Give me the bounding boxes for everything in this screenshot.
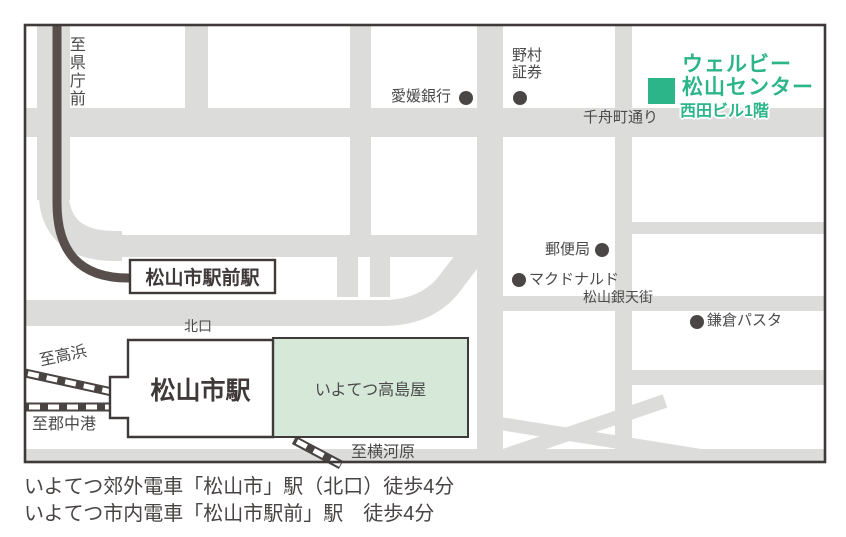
matsuyama-station-label: 松山市駅 — [128, 340, 273, 437]
post-office-dot — [595, 243, 609, 257]
kamakura-pasta-label: 鎌倉パスタ — [707, 313, 782, 330]
road-vertical-2 — [185, 26, 208, 111]
road-east-horizontal — [615, 222, 824, 234]
to-kencho-mae-label: 至県庁前 — [66, 36, 84, 108]
destination-building: 西田ビル1階 — [680, 103, 769, 121]
post-office-label: 郵便局 — [545, 242, 590, 259]
road-vertical-3 — [350, 26, 371, 257]
ehime-bank-dot — [459, 91, 473, 105]
destination-marker — [648, 78, 675, 104]
chifunecho-street-label: 千舟町通り — [583, 110, 658, 127]
north-exit-label: 北口 — [184, 319, 212, 335]
nomura-dot — [513, 91, 527, 105]
road-gintengai — [500, 296, 824, 311]
access-map: 至県庁前 千舟町通り 愛媛銀行 野村証券 ウェルビー松山センター 西田ビル1階 … — [0, 0, 846, 537]
access-caption: いよてつ郊外電車「松山市」駅（北口）徒歩4分 いよてつ市内電車「松山市駅前」駅 … — [24, 474, 454, 528]
road-mid-horizontal — [103, 235, 503, 257]
destination-name: ウェルビー松山センター — [682, 53, 814, 99]
nomura-label: 野村証券 — [512, 48, 542, 82]
road-vertical-5 — [615, 26, 632, 450]
access-caption-line2: いよてつ市内電車「松山市駅前」駅 徒歩4分 — [24, 501, 454, 528]
access-caption-line1: いよてつ郊外電車「松山市」駅（北口）徒歩4分 — [24, 474, 454, 501]
to-gunchuko-label: 至郡中港 — [32, 416, 96, 434]
road-east-horizontal-2 — [632, 370, 824, 385]
gintengai-street-label: 松山銀天街 — [583, 290, 653, 306]
road-stub-1 — [337, 257, 358, 297]
track-takahama — [25, 373, 112, 392]
kamakura-pasta-dot — [690, 315, 704, 329]
road-stub-2 — [370, 257, 390, 297]
mcdonalds-dot — [512, 273, 526, 287]
takashimaya-label: いよてつ高島屋 — [273, 338, 468, 437]
road-bottom — [26, 449, 824, 462]
mcdonalds-label: マクドナルド — [529, 272, 619, 289]
to-yokogawara-label: 至横河原 — [351, 444, 415, 462]
ekimae-station-label: 松山市駅前駅 — [130, 260, 275, 293]
ehime-bank-label: 愛媛銀行 — [391, 89, 451, 106]
